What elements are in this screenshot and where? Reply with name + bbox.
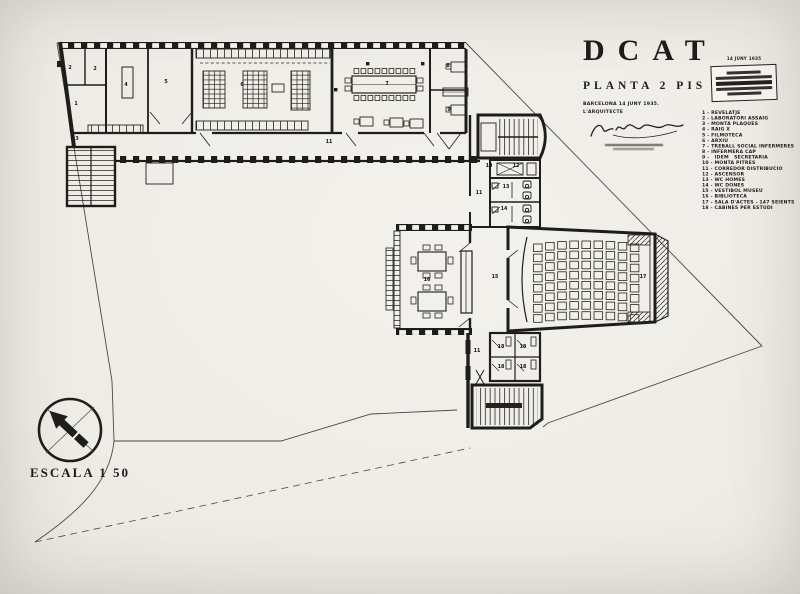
chair [382,96,387,101]
auditorium-seat [558,292,567,300]
study-rooms [490,333,540,381]
room-label: 2 [68,65,71,71]
room-label: 18 [520,364,527,370]
auditorium-seat [534,264,543,272]
chair [375,69,380,74]
photographed-floor-plan: 22134567891110121314111615171118181818 D… [0,0,800,594]
auditorium-seat [606,282,615,290]
room-label: 14 [501,206,508,212]
auditorium-seat [570,261,579,269]
stamp-seal [710,64,777,102]
auditorium-seat [534,274,543,282]
stamp-date: 14 JUNY 1935 [721,57,767,61]
auditorium-seat [534,254,543,262]
auditorium-seat [582,281,591,289]
auditorium-seat [546,243,555,251]
auditorium-seat [606,252,615,260]
chair [396,96,401,101]
auditorium-seat [594,251,603,259]
auditorium-seat [534,305,543,313]
auditorium-seat [582,292,591,300]
auditorium-seat [546,313,555,321]
auditorium-seat [606,292,615,300]
room-label: 5 [164,79,167,85]
auditorium-seat [594,271,603,279]
auditorium-seat [570,251,579,259]
auditorium-seat [630,284,639,292]
legend-item: 18 - CABINES PER ESTUDI [702,205,800,211]
auditorium-seat [582,261,591,269]
auditorium-seat [630,264,639,272]
library-tables [411,245,453,318]
chair [361,69,366,74]
auditorium-seat [582,251,591,259]
room-label: 15 [492,274,499,280]
spine-corridor [470,115,490,227]
room-label: 1 [74,101,77,107]
auditorium-seat [570,312,579,320]
chair [403,96,408,101]
auditorium-seat [546,283,555,291]
room-label: 17 [640,274,647,280]
room-label: 9 [447,107,450,113]
auditorium-seat [546,253,555,261]
auditorium-seat [594,281,603,289]
auditorium-seat [534,244,543,252]
auditorium-seat [570,302,579,310]
room-label: 6 [240,82,243,88]
room-label: 18 [498,364,505,370]
room-label: 16 [424,277,431,283]
auditorium-seat [570,281,579,289]
auditorium-seat [606,312,615,320]
auditorium-seats [534,241,639,322]
auditorium-seat [606,242,615,250]
room-label: 10 [486,163,493,169]
auditorium-seat [630,254,639,262]
chair [354,96,359,101]
auditorium-seat [534,284,543,292]
auditorium-seat [606,262,615,270]
auditorium-seat [630,274,639,282]
room-label: 4 [124,82,127,88]
auditorium-seat [630,295,639,303]
stair-west [67,147,115,206]
wc-block [490,178,540,227]
auditorium-seat [546,303,555,311]
auditorium-seat [558,282,567,290]
legend-item: 17 - SALA D'ACTES - 147 SEIENTS [702,199,800,205]
auditorium-seat [618,243,627,251]
auditorium-seat [570,241,579,249]
auditorium-seat [618,263,627,271]
auditorium-seat [594,292,603,300]
auditorium-seat [558,302,567,310]
auditorium-seat [618,253,627,261]
chair [361,96,366,101]
auditorium-seat [558,312,567,320]
chair [389,69,394,74]
scale-label: ESCALA 1 50 [30,465,130,481]
auditorium-seat [594,302,603,310]
chair [368,96,373,101]
room-label: 12 [513,163,520,169]
auditorium-seat [606,302,615,310]
chair [389,96,394,101]
auditorium-seat [558,272,567,280]
auditorium-seat [594,312,603,320]
auditorium-seat [594,241,603,249]
chair [354,69,359,74]
auditorium-seat [558,262,567,270]
room-label: 18 [520,344,527,350]
auditorium-seat [618,303,627,311]
auditorium-seat [618,313,627,321]
room-label: 18 [498,344,505,350]
room-label: 7 [385,81,388,87]
auditorium-seat [594,261,603,269]
auditorium-seat [558,242,567,250]
registry-stamp: 14 JUNY 1935 [711,57,777,101]
stair-north [478,115,545,158]
room-label: 13 [503,184,510,190]
auditorium-seat [618,273,627,281]
chair [375,96,380,101]
auditorium-seat [582,312,591,320]
north-arrow-icon [39,399,101,461]
chair [368,69,373,74]
room-label: 3 [75,136,78,142]
main-wing-walls [60,42,480,184]
auditorium-seat [558,252,567,260]
room-label: 11 [326,139,333,145]
auditorium-seat [618,283,627,291]
auditorium-seat [546,273,555,281]
auditorium-seat [534,295,543,303]
auditorium-seat [630,305,639,313]
auditorium-seat [546,293,555,301]
auditorium-seat [570,292,579,300]
auditorium-seat [570,271,579,279]
auditorium-seat [582,302,591,310]
room-label: 8 [446,63,449,69]
signature-icon [583,118,688,162]
auditorium-seat [582,271,591,279]
chair [410,96,415,101]
auditorium-seat [534,315,543,323]
room-label: 11 [474,348,481,354]
chair [382,69,387,74]
auditorium-seat [582,241,591,249]
room-label: 2 [93,66,96,72]
signature-stamp [605,142,663,152]
chair [403,69,408,74]
chair [396,69,401,74]
auditorium-seat [546,263,555,271]
auditorium-seat [618,293,627,301]
chair [410,69,415,74]
room-label: 11 [476,190,483,196]
auditorium-seat [606,272,615,280]
wing-furniture [57,49,468,133]
room-legend: 1 - REVELATJE2 - LABORATORI ASSAIG3 - MO… [702,110,800,210]
